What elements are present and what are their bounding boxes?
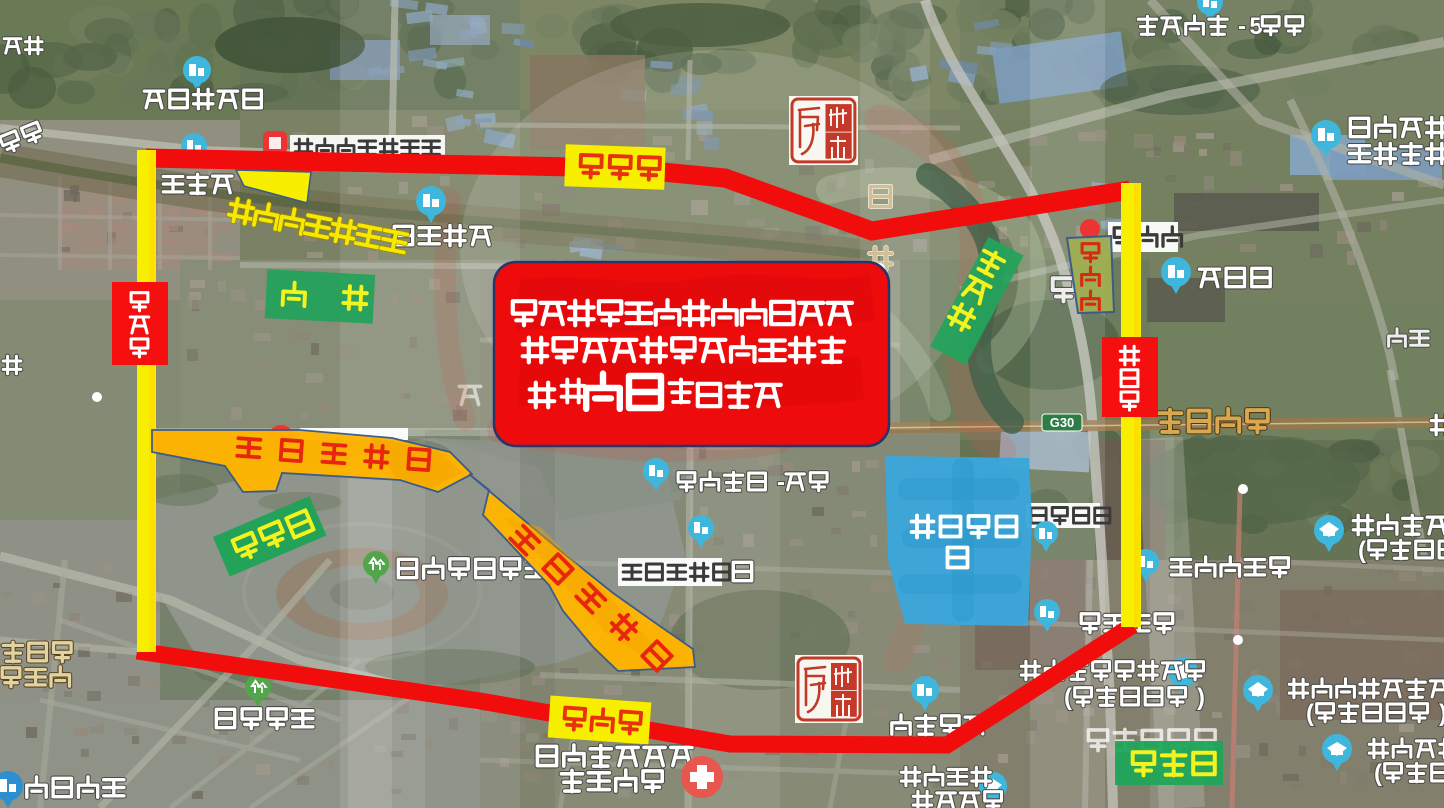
svg-text:(: ( — [1064, 684, 1072, 711]
svg-text:(: ( — [1358, 537, 1366, 564]
svg-text:): ) — [1197, 684, 1205, 711]
svg-text:G30: G30 — [1050, 415, 1075, 430]
svg-text:-: - — [1238, 13, 1246, 40]
svg-text:(: ( — [1306, 700, 1314, 727]
svg-text:): ) — [1439, 700, 1444, 727]
svg-text:(: ( — [1374, 760, 1382, 787]
